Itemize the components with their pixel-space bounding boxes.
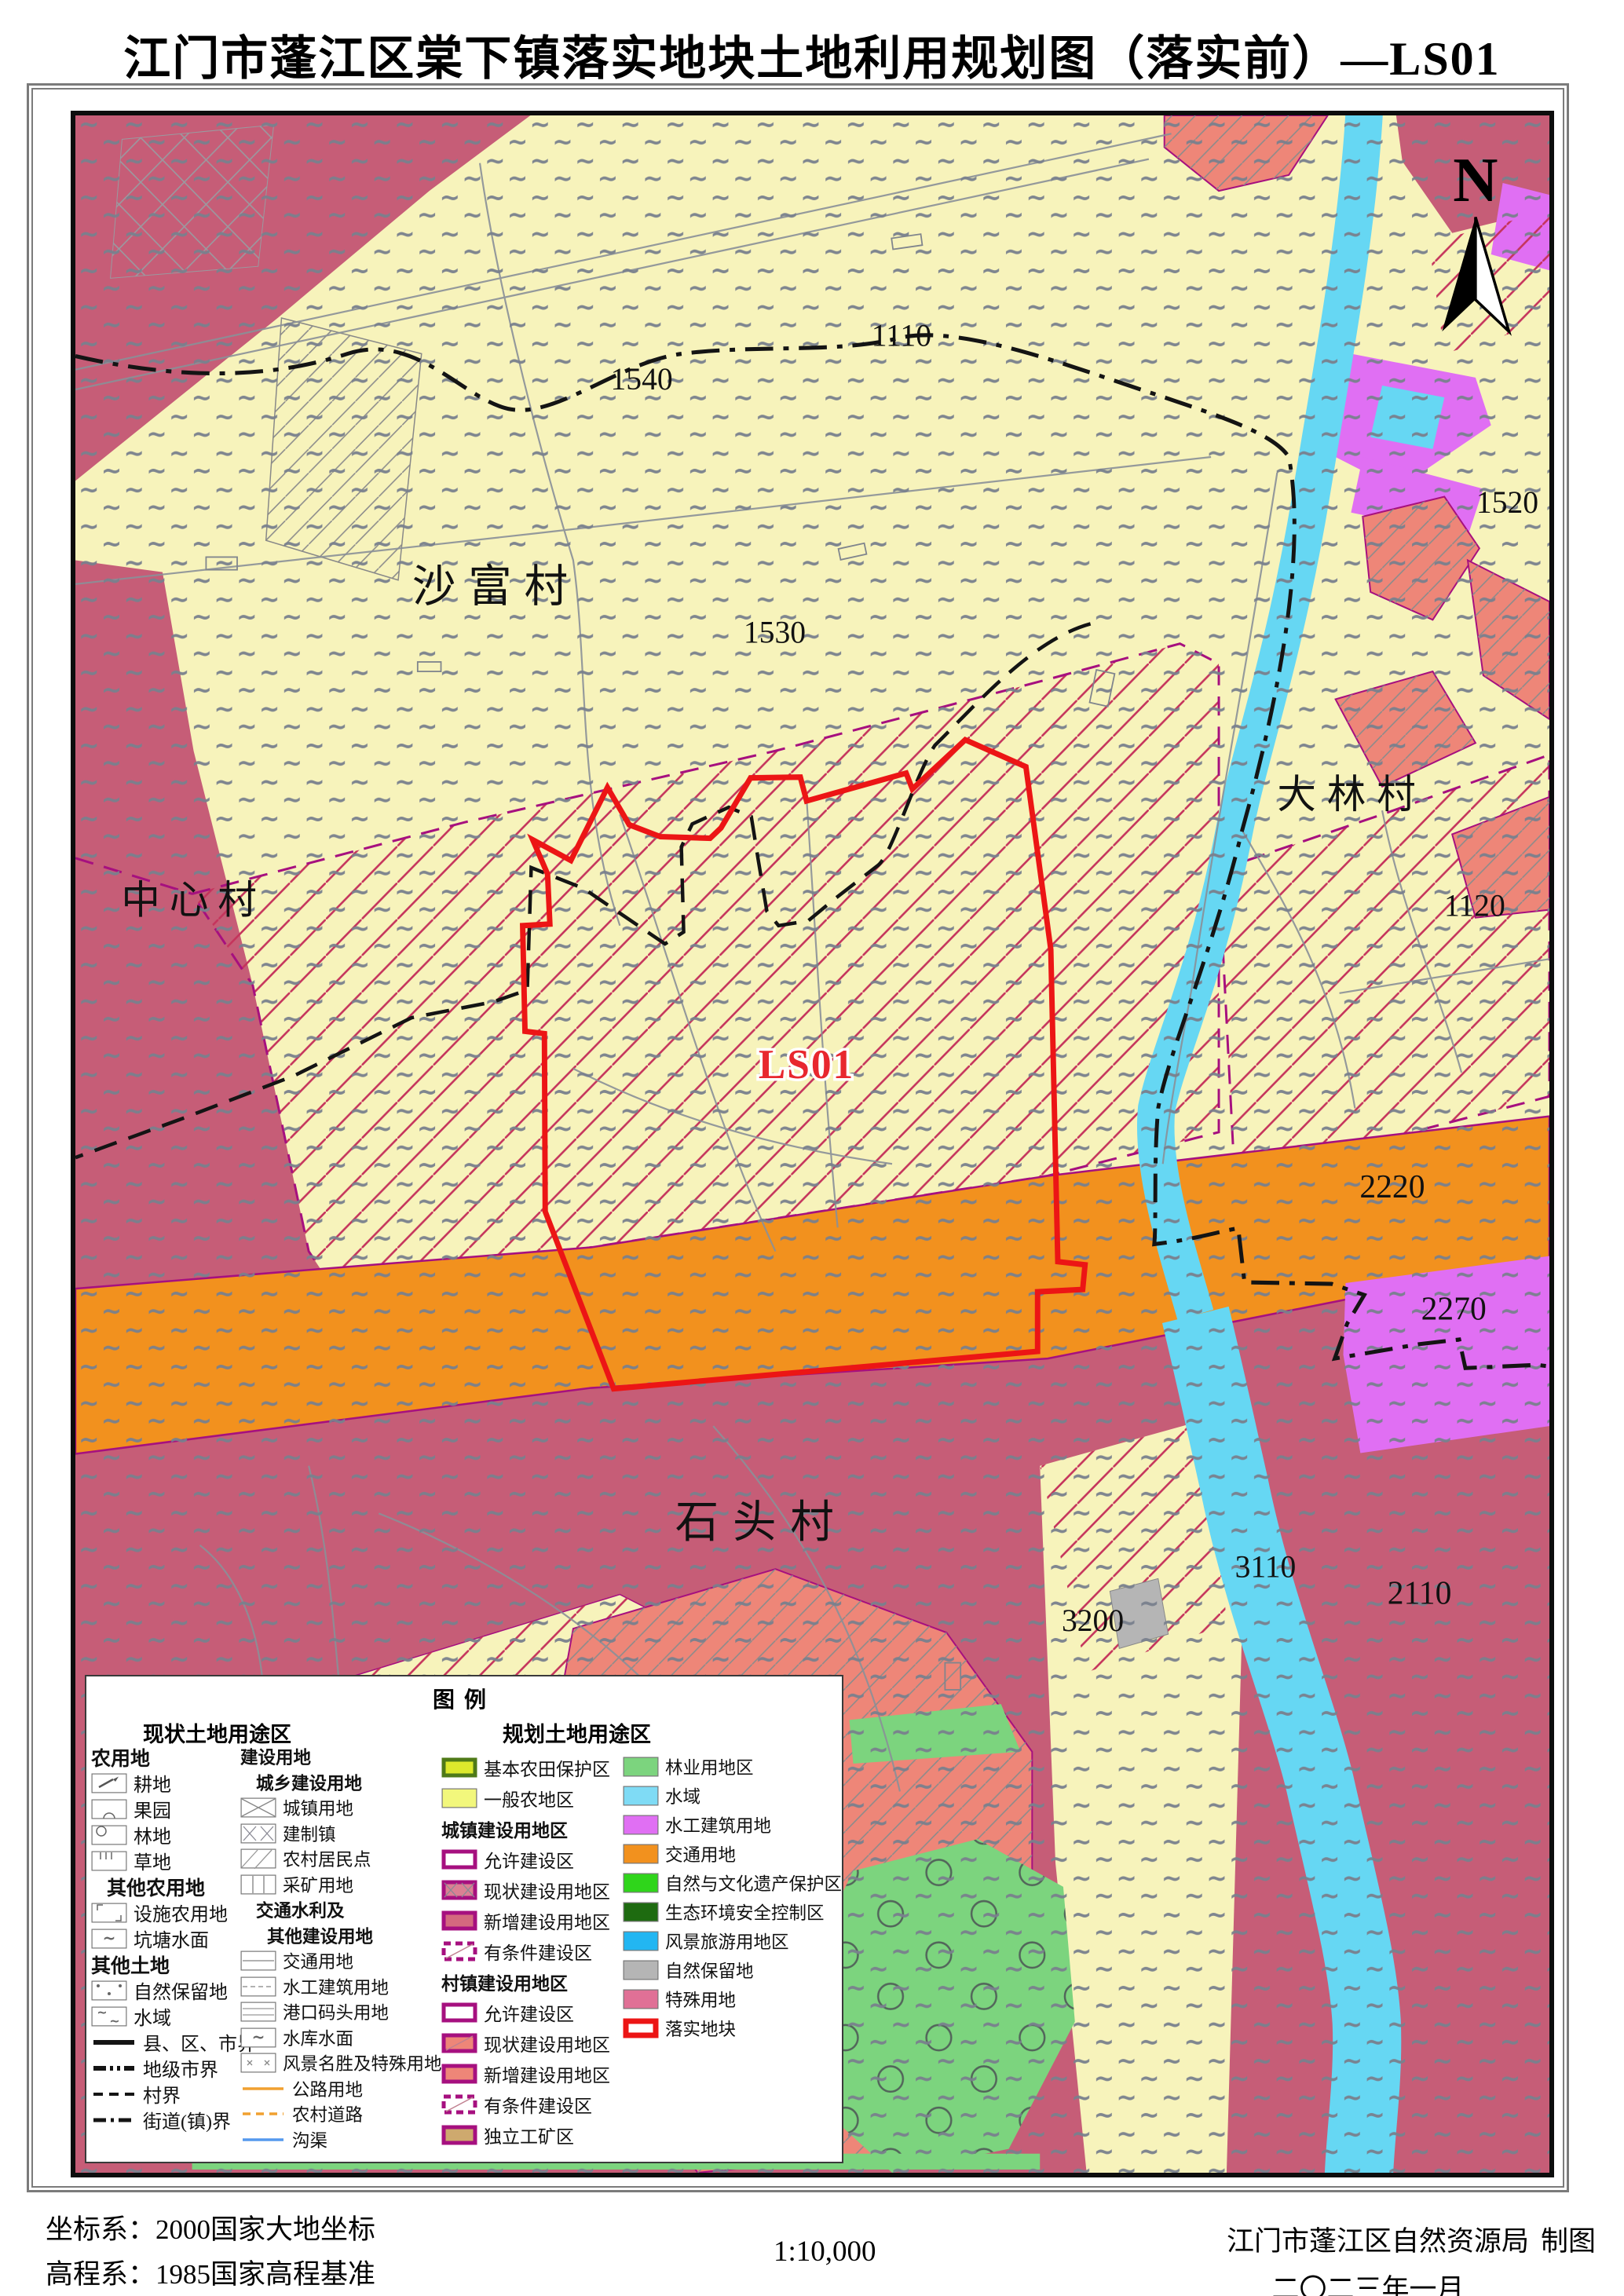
map-label-1530: 1530 [744,614,806,649]
svg-text:~: ~ [252,2027,265,2046]
legend-label: 设施农用地 [134,1899,228,1926]
legend-label: 基本农田保护区 [484,1754,610,1781]
map-date: 二〇二三年一月 [1227,2267,1509,2296]
legend-label: 自然保留地 [134,1976,228,2004]
legend-label: 建制镇 [283,1821,336,1846]
legend-item: 新增建设用地区 [441,2058,624,2089]
legend-label: 耕地 [134,1769,171,1797]
legend-swatch-pencil [91,1773,127,1793]
legend-swatch-line-blue [240,2134,286,2145]
legend-label: 村镇建设用地区 [441,1969,568,1995]
legend-item: 港口码头用地 [240,1999,452,2025]
legend-label: 特殊用地 [665,1987,736,2012]
legend-swatch-fill [441,2002,477,2023]
legend-swatch-fill [441,2064,477,2084]
legend-item: 交通用地 [623,1839,843,1868]
legend-swatch-line-orange-dash [240,2108,286,2119]
legend-swatch-fill [623,1786,659,1806]
credits: 江门市蓬江区自然资源局 制图 二〇二三年一月 [1227,2219,1596,2296]
legend-item: 自然保留地 [623,1955,843,1984]
legend-swatch-diag1 [441,2033,477,2053]
legend-item: 沟渠 [240,2127,452,2153]
legend-item: 有条件建设区 [441,2089,624,2119]
legend-column-planned-left: 基本农田保护区一般农地区城镇建设用地区允许建设区现状建设用地区新增建设用地区有条… [441,1752,624,2150]
legend-item: 水工建筑用地 [240,1974,452,2000]
legend-item: 自然与文化遗产保护区 [623,1868,843,1897]
legend-swatch-fill [441,2125,477,2145]
map-label-2270: 2270 [1421,1291,1487,1327]
legend-swatch-fill [623,1902,659,1922]
legend-label: 风景旅游用地区 [665,1929,789,1954]
legend-swatch-xx [240,1823,276,1844]
legend-swatch-xx [441,1880,477,1900]
legend-swatch-fill [623,1989,659,2009]
datum-notes: 坐标系：2000国家大地坐标 高程系：1985国家高程基准 [46,2208,375,2296]
legend-column-planned-right: 林业用地区水域水工建筑用地交通用地自然与文化遗产保护区生态环境安全控制区风景旅游… [623,1752,843,2042]
legend-label: 农用地 [91,1743,150,1771]
legend-item: 农村居民点 [240,1846,452,1872]
legend-swatch-line-dash [91,2089,137,2100]
map-label-中心村: 中心村 [121,878,265,923]
map-label-3110: 3110 [1235,1548,1297,1584]
legend-label: 水域 [134,2002,171,2030]
legend-item: 新增建设用地区 [441,1905,624,1936]
legend-swatch-fill [441,1849,477,1870]
legend-item: 基本农田保护区 [441,1752,624,1782]
legend-label: 有条件建设区 [484,1938,592,1965]
legend-label: 交通水利及 [256,1897,345,1922]
legend-swatch-vlines [240,1874,276,1895]
legend-label: 村界 [143,2080,181,2108]
page: 江门市蓬江区棠下镇落实地块土地利用规划图（落实前）—LS01 ~ ~ [0,0,1624,2296]
legend-label: 农村道路 [292,2101,363,2126]
legend-swatch-tilde2: ~~ [91,2006,127,2027]
legend-label: 县、区、市界 [143,2028,256,2056]
legend-label: 港口码头用地 [283,1999,389,2024]
legend-label: 风景名胜及特殊用地 [283,2050,442,2075]
legend-item: 一般农地区 [441,1782,624,1813]
legend-swatch-fill [623,2018,659,2038]
legend-swatch-fill [623,1931,659,1951]
legend-label: 林业用地区 [665,1754,754,1779]
legend-label: 其他建设用地 [267,1923,373,1948]
legend-column-construction: 建设用地城乡建设用地城镇用地建制镇农村居民点采矿用地交通水利及其他建设用地交通用… [240,1744,452,2152]
legend-label: 交通用地 [665,1841,736,1866]
legend-label: 林地 [134,1821,171,1848]
legend-item: ~水库水面 [240,2025,452,2051]
legend-item: 允许建设区 [441,1997,624,2027]
map-label-1520: 1520 [1476,484,1538,519]
map-label-石头村: 石头村 [675,1498,848,1548]
svg-text:~: ~ [103,1929,116,1947]
legend-swatch-fill [623,1960,659,1980]
legend-item: 风景名胜及特殊用地 [240,2050,452,2076]
legend-subheader: 村镇建设用地区 [441,1966,624,1997]
legend-item: 水域 [623,1781,843,1810]
legend-swatch-vticks [91,1851,127,1871]
legend-label: 新增建设用地区 [484,2060,610,2087]
legend-subheader: 其他建设用地 [240,1923,452,1949]
map-label-1110: 1110 [872,317,931,353]
legend-label: 城乡建设用地 [256,1770,362,1795]
legend-swatch-circle-b [91,1799,127,1819]
legend-label: 一般农地区 [484,1785,574,1812]
legend-item: 采矿用地 [240,1872,452,1898]
map-label-2220: 2220 [1359,1168,1425,1205]
legend-subheader: 建设用地 [240,1744,452,1770]
legend-swatch-dots [91,1980,127,2001]
legend-swatch-bracket [91,1903,127,1923]
legend-planned-header: 规划土地用途区 [503,1717,651,1748]
legend-label: 采矿用地 [283,1872,353,1897]
legend-label: 公路用地 [292,2076,363,2101]
legend-swatch-diag [240,1848,276,1869]
map-scale: 1:10,000 [774,2235,876,2269]
legend-label: 生态环境安全控制区 [665,1899,825,1925]
map-title: 江门市蓬江区棠下镇落实地块土地利用规划图（落实前）—LS01 [0,20,1624,89]
legend-label: 独立工矿区 [484,2122,574,2148]
legend-item: 允许建设区 [441,1844,624,1874]
legend-label: 水工建筑用地 [283,1974,389,1999]
agency-name: 江门市蓬江区自然资源局 [1227,2219,1529,2259]
legend-swatch-hdash [240,1976,276,1997]
legend-swatch-xfull [240,1797,276,1818]
map-label-3200: 3200 [1062,1603,1124,1638]
svg-text:~: ~ [109,2013,119,2027]
legend-swatch-line-dashdot [91,2115,137,2126]
legend-item: 独立工矿区 [441,2119,624,2150]
legend-swatch-hlines [240,2002,276,2022]
legend-item: 交通用地 [240,1948,452,1974]
legend-swatch-diag1 [441,2094,477,2115]
legend-label: 自然与文化遗产保护区 [665,1870,842,1896]
legend-label: 街道(镇)界 [143,2106,231,2133]
legend-label: 草地 [134,1847,171,1874]
legend-label: 城镇用地 [283,1795,353,1820]
legend-swatch-fill [441,1788,477,1808]
legend-swatch-line-dashdotdot [91,2063,137,2074]
legend-panel: 图例 现状土地用途区 规划土地用途区 农用地耕地果园林地草地其他农用地设施农用地… [85,1675,843,2163]
north-letter: N [1453,146,1498,216]
legend-swatch-tilde: ~ [240,2027,276,2048]
svg-text:~: ~ [97,2006,107,2020]
legend-label: 水工建筑用地 [665,1812,771,1837]
height-datum-note: 高程系：1985国家高程基准 [46,2253,375,2296]
legend-label: 允许建设区 [484,1846,574,1873]
legend-swatch-fill [623,1873,659,1893]
legend-label: 果园 [134,1795,171,1823]
legend-swatch-line-solid [91,2037,137,2048]
legend-label: 水库水面 [283,2025,353,2050]
legend-label: 坑塘水面 [134,1925,209,1952]
legend-item: 现状建设用地区 [441,1874,624,1905]
legend-item: 有条件建设区 [441,1936,624,1966]
map-label-大林村: 大林村 [1277,773,1426,817]
legend-subheader: 交通水利及 [240,1897,452,1923]
legend-label: 其他农用地 [107,1873,205,1901]
legend-label: 有条件建设区 [484,2091,592,2118]
legend-label: 新增建设用地区 [484,1907,610,1934]
legend-subheader: 城乡建设用地 [240,1770,452,1796]
legend-item: 水工建筑用地 [623,1810,843,1839]
legend-item: 风景旅游用地区 [623,1926,843,1955]
legend-item: 特殊用地 [623,1984,843,2013]
legend-label: 落实地块 [665,2016,736,2041]
legend-item: 建制镇 [240,1821,452,1847]
legend-item: 农村道路 [240,2101,452,2127]
map-label-LS01: LS01 [759,1043,854,1088]
legend-label: 交通用地 [283,1948,353,1973]
map-label-沙富村: 沙富村 [412,563,580,612]
legend-label: 农村居民点 [283,1846,371,1871]
legend-swatch-hline [240,1951,276,1971]
legend-swatch-tilde: ~ [91,1929,127,1949]
legend-item: 现状建设用地区 [441,2027,624,2058]
legend-subheader: 城镇建设用地区 [441,1813,624,1844]
legend-label: 自然保留地 [665,1958,754,1983]
legend-swatch-fill [623,1844,659,1864]
legend-swatch-circle-t [91,1825,127,1845]
legend-item: 公路用地 [240,2076,452,2102]
legend-item: 落实地块 [623,2013,843,2042]
map-label-1540: 1540 [610,361,672,397]
legend-label: 沟渠 [292,2127,327,2152]
map-label-1120: 1120 [1444,887,1505,923]
legend-swatch-fill [441,1910,477,1931]
coordinate-system-note: 坐标系：2000国家大地坐标 [46,2208,375,2253]
legend-label: 建设用地 [240,1744,311,1769]
legend-swatch-xsmall [240,2053,276,2073]
drafter-label: 制图 [1541,2219,1596,2259]
legend-label: 城镇建设用地区 [441,1815,568,1842]
legend-label: 水域 [665,1783,700,1808]
legend-item: 城镇用地 [240,1795,452,1821]
legend-swatch-fill [623,1757,659,1777]
legend-title: 图例 [433,1683,496,1714]
legend-label: 其他土地 [91,1951,170,1979]
legend-swatch-fill [623,1815,659,1835]
legend-swatch-fill [441,1757,477,1778]
legend-item: 林业用地区 [623,1752,843,1781]
legend-label: 现状建设用地区 [484,2030,610,2057]
map-canvas[interactable]: ~ ~ [71,111,1554,2177]
legend-item: 生态环境安全控制区 [623,1897,843,1926]
legend-label: 允许建设区 [484,1999,574,2026]
legend-label: 现状建设用地区 [484,1877,610,1903]
legend-swatch-line-orange [240,2083,286,2094]
map-label-2110: 2110 [1388,1575,1452,1611]
legend-swatch-diag1 [441,1941,477,1961]
legend-label: 地级市界 [143,2054,218,2082]
